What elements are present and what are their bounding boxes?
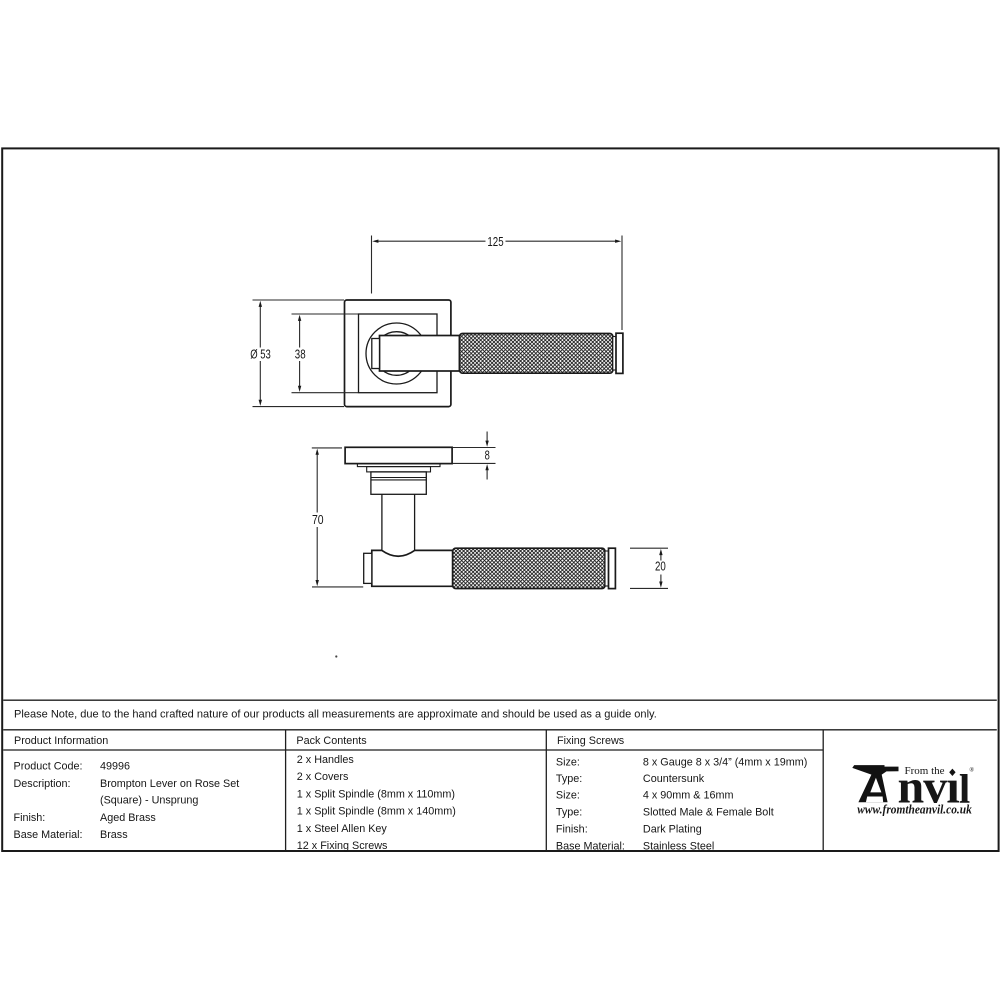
svg-text:20: 20 [655, 559, 666, 574]
svg-text:12 x Fixing Screws: 12 x Fixing Screws [297, 840, 388, 852]
svg-text:8 x Gauge 8 x 3/4” (4mm x 19mm: 8 x Gauge 8 x 3/4” (4mm x 19mm) [643, 757, 807, 769]
svg-text:1 x Split Spindle (8mm x 110mm: 1 x Split Spindle (8mm x 110mm) [297, 788, 455, 800]
svg-text:2 x Covers: 2 x Covers [297, 771, 349, 783]
svg-text:(Square) - Unsprung: (Square) - Unsprung [100, 795, 198, 807]
svg-text:Finish:: Finish: [14, 812, 46, 824]
svg-text:Type:: Type: [556, 773, 582, 785]
svg-text:Brass: Brass [100, 829, 128, 841]
svg-text:Type:: Type: [556, 807, 582, 819]
svg-text:49996: 49996 [100, 761, 130, 773]
svg-text:1 x Split Spindle (8mm x 140mm: 1 x Split Spindle (8mm x 140mm) [297, 806, 456, 818]
svg-text:Product Code:: Product Code: [14, 761, 83, 773]
svg-text:Size:: Size: [556, 790, 580, 802]
svg-text:Brompton Lever on Rose Set: Brompton Lever on Rose Set [100, 778, 239, 790]
svg-text:Countersunk: Countersunk [643, 773, 705, 785]
svg-text:8: 8 [485, 448, 490, 463]
svg-text:Ø 53: Ø 53 [250, 347, 271, 362]
svg-text:Fixing Screws: Fixing Screws [557, 735, 625, 747]
svg-text:125: 125 [487, 234, 503, 249]
svg-text:®: ® [969, 766, 974, 773]
svg-text:Base Material:: Base Material: [556, 841, 625, 853]
svg-text:4 x 90mm & 16mm: 4 x 90mm & 16mm [643, 790, 734, 802]
svg-text:Dark Plating: Dark Plating [643, 823, 702, 835]
svg-text:Description:: Description: [14, 778, 71, 790]
svg-text:2 x Handles: 2 x Handles [297, 754, 355, 766]
svg-text:Slotted Male & Female Bolt: Slotted Male & Female Bolt [643, 807, 774, 819]
svg-text:Pack Contents: Pack Contents [296, 735, 367, 747]
svg-text:70: 70 [312, 512, 324, 527]
svg-text:Base Material:: Base Material: [14, 829, 83, 841]
svg-text:Aged Brass: Aged Brass [100, 812, 156, 824]
svg-text:Product Information: Product Information [14, 735, 108, 747]
svg-text:1 x Steel Allen Key: 1 x Steel Allen Key [297, 823, 388, 835]
svg-text:Finish:: Finish: [556, 823, 588, 835]
svg-text:www.fromtheanvil.co.uk: www.fromtheanvil.co.uk [857, 803, 972, 817]
svg-text:Size:: Size: [556, 757, 580, 769]
svg-text:Stainless Steel: Stainless Steel [643, 841, 714, 853]
svg-text:38: 38 [295, 347, 306, 362]
svg-text:Please Note, due to the hand c: Please Note, due to the hand crafted nat… [14, 709, 657, 721]
